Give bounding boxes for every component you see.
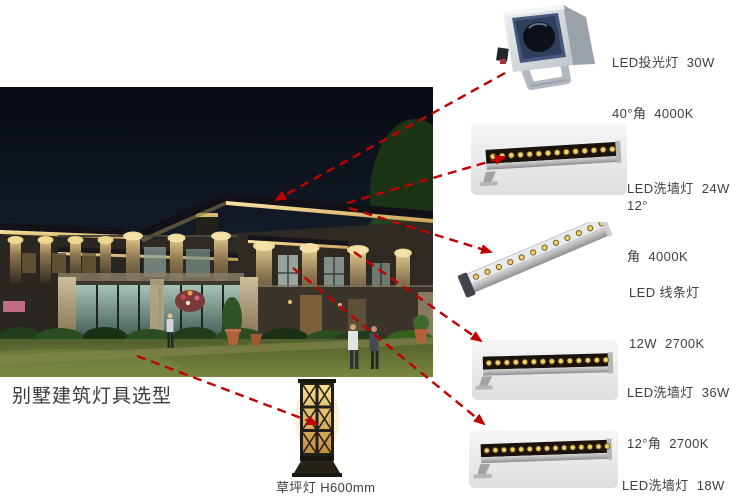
wall-washer-24w-label-line1: LED洗墙灯 24W 12° — [627, 180, 749, 214]
linear-light-label-line1: LED 线条灯 — [629, 284, 739, 301]
wall-washer-24w-image — [470, 122, 628, 198]
wall-washer-18w-label: LED洗墙灯 18W 12°角 2700K — [622, 443, 744, 502]
floodlight-label-line1: LED投光灯 30W — [612, 54, 724, 71]
slide-canvas: 别墅建筑灯具选型 LED投光灯 30W 40°角 4000K LED洗墙灯 24… — [0, 0, 750, 502]
floodlight-lens — [523, 22, 555, 52]
floodlight-image — [485, 2, 600, 96]
wall-washer-18w-image — [468, 429, 621, 491]
floodlight-label: LED投光灯 30W 40°角 4000K — [612, 20, 724, 156]
floodlight-label-line2: 40°角 4000K — [612, 105, 724, 122]
front-lawn — [0, 337, 433, 377]
wall-washer-36w-label-line1: LED洗墙灯 36W — [627, 384, 749, 401]
wall-washer-18w-label-line1: LED洗墙灯 18W — [622, 477, 744, 494]
lawn-lamp-image — [287, 379, 349, 481]
diagram-title: 别墅建筑灯具选型 — [12, 381, 172, 408]
linear-light-image — [453, 222, 625, 307]
villa-night-rendering — [0, 87, 433, 377]
wall-washer-36w-image — [471, 339, 621, 403]
lawn-lamp-label: 草坪灯 H600mm — [276, 479, 406, 496]
